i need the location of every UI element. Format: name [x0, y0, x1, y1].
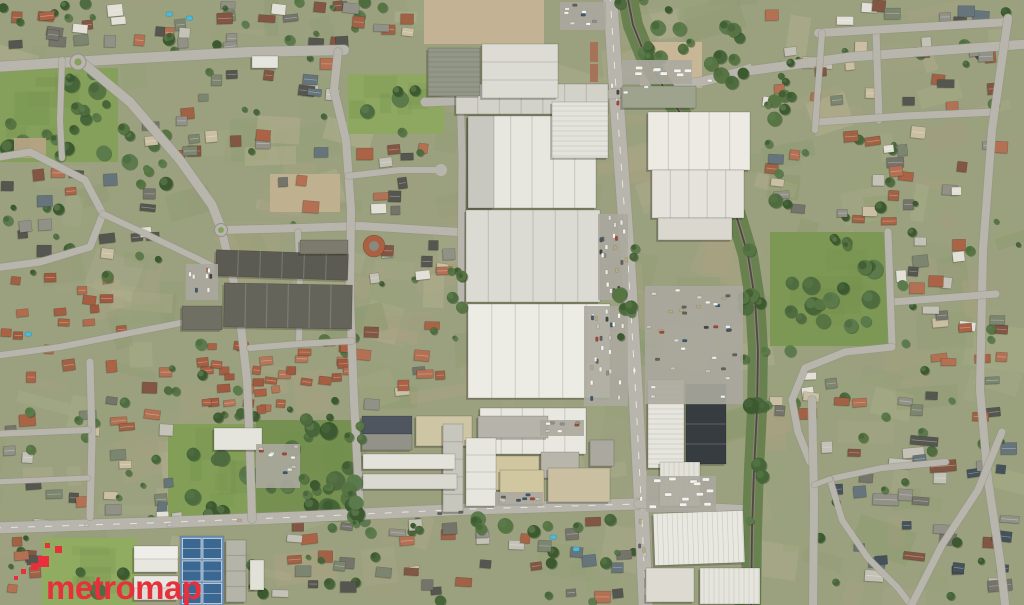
aerial-map-viewport: metromap	[0, 0, 1024, 605]
metromap-logo: metromap	[8, 541, 218, 605]
aerial-imagery	[0, 0, 1024, 605]
metromap-logo-text: metromap	[46, 569, 202, 605]
